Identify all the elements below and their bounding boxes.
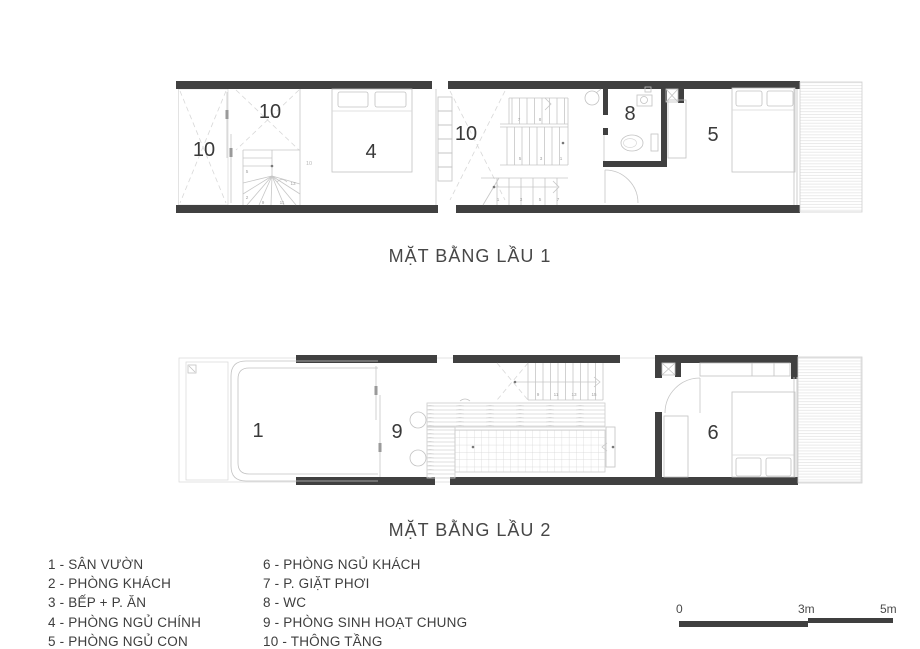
washbasin-bowl-icon — [641, 97, 648, 104]
tread-number: 9 — [262, 200, 265, 205]
toilet-bowl-icon — [624, 139, 637, 148]
plan1-round-basin — [585, 89, 601, 105]
plan2-balcony-hatch — [798, 357, 862, 483]
tread-number: 9 — [537, 392, 540, 397]
grain-mark — [460, 399, 470, 401]
room-label-garden: 1 — [252, 420, 263, 442]
stair-dot — [562, 142, 565, 145]
room-label-bed-child: 5 — [707, 124, 718, 146]
stair-dot — [493, 186, 496, 189]
scale-label-five: 5m — [880, 602, 897, 616]
plan2-shaft — [662, 363, 675, 375]
bed-icon — [732, 392, 795, 477]
door-swing-arc — [665, 378, 700, 413]
grid-dot — [472, 446, 475, 449]
stair-start-dot — [271, 165, 274, 168]
plan2-sliding-door — [375, 366, 382, 477]
door-swing-arc — [605, 170, 638, 203]
plans-drawing: 10 10 4 10 8 5 7 8 5 3 1 1 3 5 7 5 2 9 1… — [0, 0, 920, 649]
legend-right-column: 6 - PHÒNG NGỦ KHÁCH 7 - P. GIẶT PHƠI 8 -… — [263, 555, 467, 649]
tread-number: 3 — [520, 197, 523, 202]
tread-number: 5 — [539, 197, 542, 202]
plan2-net-grid — [455, 430, 605, 472]
tread-number: 3 — [540, 156, 543, 161]
plan1-door — [605, 170, 638, 203]
room-label-guest: 6 — [707, 422, 718, 444]
annotation-number: 10 — [306, 161, 312, 167]
legend-item: 4 - PHÒNG NGỦ CHÍNH — [48, 613, 201, 632]
scale-label-zero: 0 — [676, 602, 683, 616]
plan2-garden-strip — [186, 362, 228, 480]
tread-number: 13 — [290, 181, 296, 186]
stool-icon — [410, 450, 426, 466]
plan1-shelving — [438, 97, 452, 181]
room-label-common: 9 — [391, 421, 402, 443]
room-label-void-left: 10 — [193, 139, 215, 161]
stair-up-arrow-icon — [545, 98, 551, 110]
plan2-guest-bed — [732, 392, 795, 477]
tread-number: 8 — [539, 117, 542, 122]
tread-number: 1 — [497, 197, 500, 202]
plan2-void-cross — [497, 363, 528, 400]
legend-item: 7 - P. GIẶT PHƠI — [263, 574, 467, 593]
plan2-drawing: 1 9 6 9 11 13 15 — [179, 355, 862, 485]
legend-item: 2 - PHÒNG KHÁCH — [48, 574, 201, 593]
bed-icon — [732, 88, 795, 172]
plan2-closet — [700, 363, 790, 376]
tread-number: 2 — [246, 195, 249, 200]
plan1-winder-stair — [243, 150, 300, 205]
legend-left-column: 1 - SÂN VƯỜN 2 - PHÒNG KHÁCH 3 - BẾP + P… — [48, 555, 201, 649]
legend-item: 10 - THÔNG TẦNG — [263, 632, 467, 649]
plan2-door — [665, 378, 700, 413]
legend-item: 6 - PHÒNG NGỦ KHÁCH — [263, 555, 467, 574]
tread-number: 5 — [519, 156, 522, 161]
legend-item: 3 - BẾP + P. ĂN — [48, 593, 201, 612]
scale-label-three: 3m — [798, 602, 815, 616]
legend-item: 9 - PHÒNG SINH HOẠT CHUNG — [263, 613, 467, 632]
toilet-icon — [621, 135, 643, 151]
tread-number: 13 — [571, 392, 577, 397]
plan1-main-stair — [481, 98, 568, 205]
plan1-drawing: 10 10 4 10 8 5 7 8 5 3 1 1 3 5 7 5 2 9 1… — [176, 81, 862, 213]
door-handle-icon — [230, 148, 233, 157]
stool-icon — [410, 412, 426, 428]
legend-item: 1 - SÂN VƯỜN — [48, 555, 201, 574]
tread-number: 11 — [554, 392, 559, 397]
plan1-wardrobe — [668, 100, 686, 158]
door-handle-icon — [379, 443, 382, 452]
tread-number: 11 — [280, 200, 285, 205]
toilet-tank-icon — [651, 134, 658, 151]
plan1-balcony-hatch — [800, 82, 862, 212]
room-label-bed-main: 4 — [365, 141, 376, 163]
tread-number: 7 — [518, 117, 521, 122]
plan1-title: MẶT BẰNG LẦU 1 — [320, 246, 620, 267]
tread-number: 15 — [591, 392, 597, 397]
plan1-sliding-door — [226, 92, 233, 203]
round-basin-icon — [585, 91, 599, 105]
plan2-wardrobe — [664, 416, 688, 477]
legend-item: 5 - PHÒNG NGỦ CON — [48, 632, 201, 649]
room-label-void-stair: 10 — [455, 123, 477, 145]
scale-bar-segment-high — [808, 618, 893, 624]
plan2-stair — [515, 363, 603, 400]
legend-item: 8 - WC — [263, 593, 467, 612]
room-label-void-mid: 10 — [259, 101, 281, 123]
room-label-wc: 8 — [624, 103, 635, 125]
stair-dot — [514, 381, 517, 384]
floor-plan-sheet: 10 10 4 10 8 5 7 8 5 3 1 1 3 5 7 5 2 9 1… — [0, 0, 920, 649]
scale-bar-segment-low — [679, 621, 808, 627]
door-handle-icon — [375, 386, 378, 395]
tread-number: 7 — [557, 197, 560, 202]
tread-number: 1 — [560, 156, 563, 161]
door-handle-icon — [226, 110, 229, 119]
plan2-title: MẶT BẰNG LẦU 2 — [320, 520, 620, 541]
tread-number: 5 — [246, 169, 249, 174]
plan1-child-bed — [732, 88, 795, 172]
